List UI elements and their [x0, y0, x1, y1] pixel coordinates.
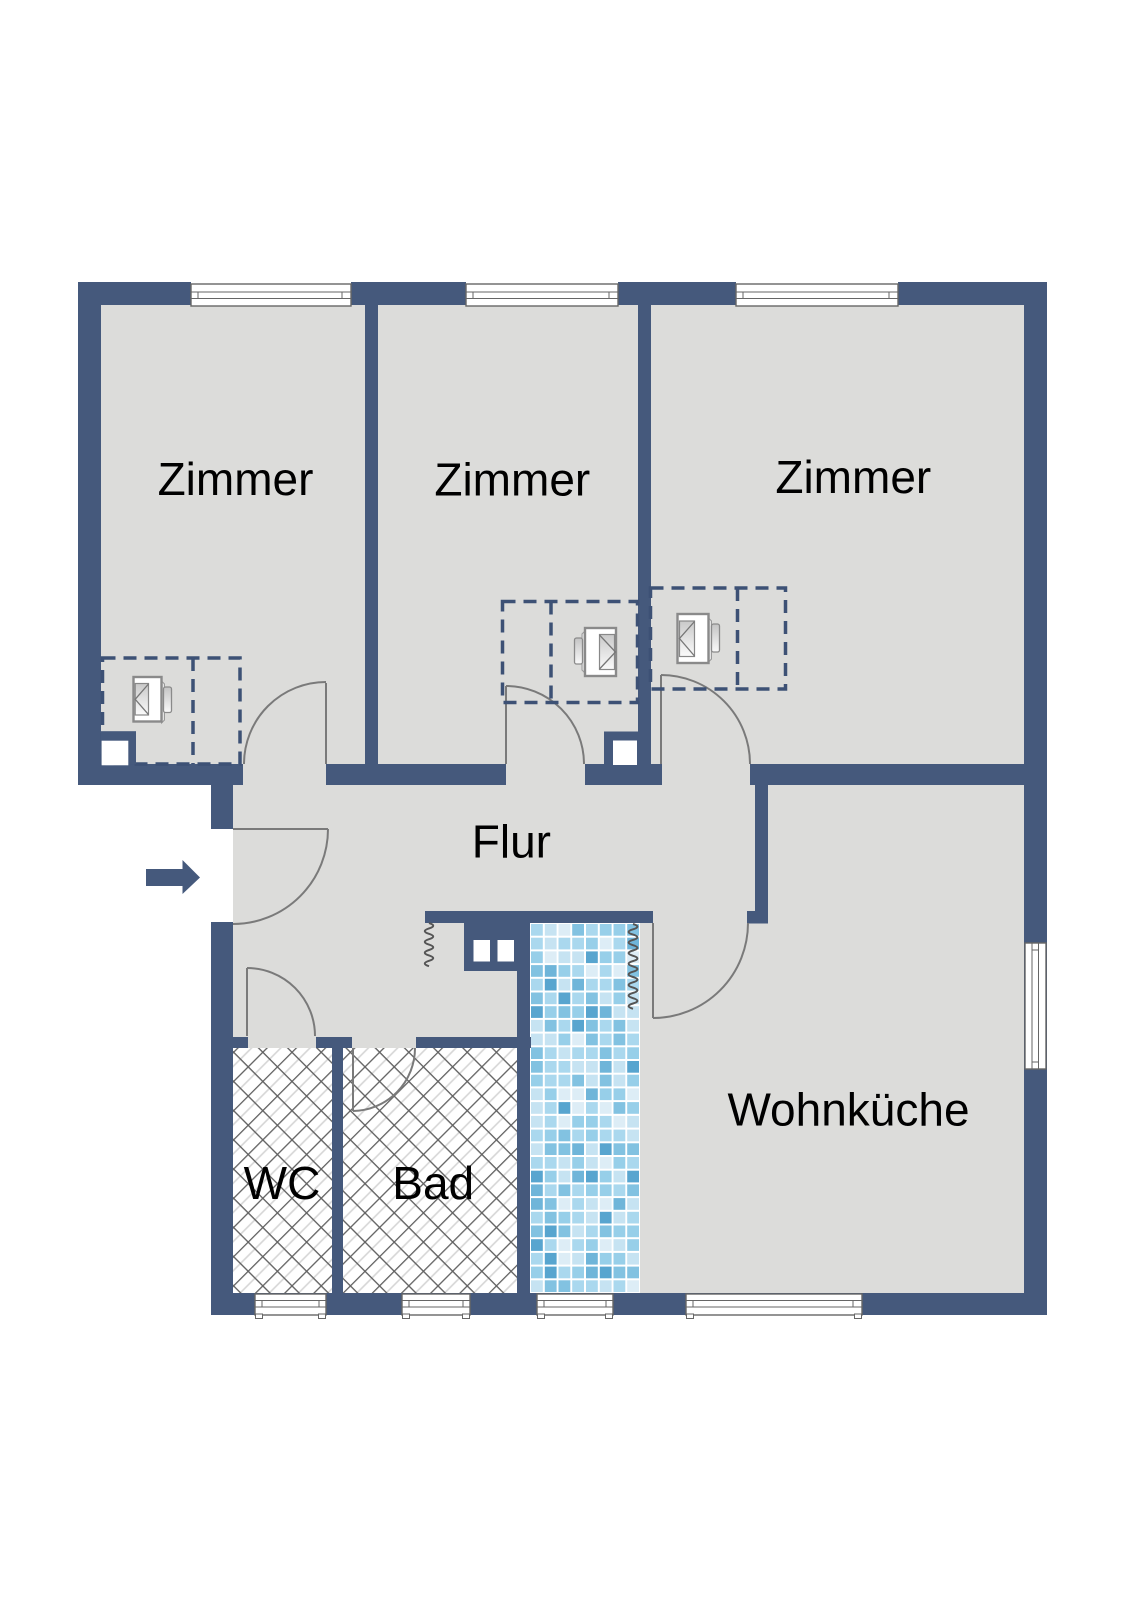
svg-text:Bad: Bad: [392, 1157, 474, 1209]
svg-text:Zimmer: Zimmer: [434, 453, 590, 505]
svg-text:Zimmer: Zimmer: [158, 453, 314, 505]
svg-text:Zimmer: Zimmer: [775, 451, 931, 503]
svg-text:Flur: Flur: [472, 816, 551, 868]
svg-text:Wohnküche: Wohnküche: [727, 1084, 969, 1136]
svg-text:WC: WC: [244, 1157, 321, 1209]
